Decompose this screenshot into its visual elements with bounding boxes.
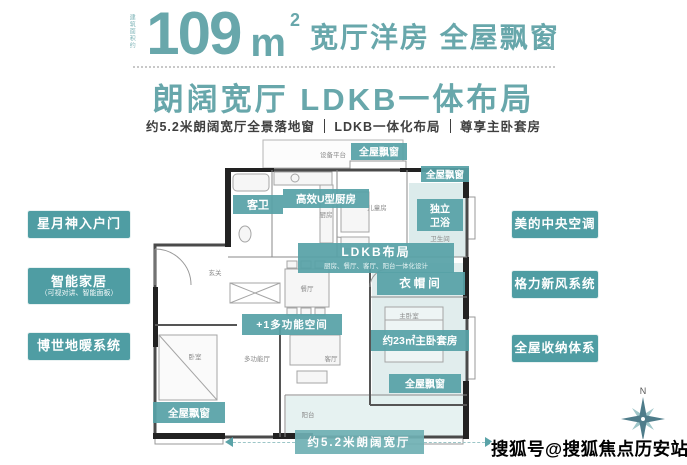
- width-dimension: 约5.2米朗阔宽厅: [225, 430, 493, 454]
- overlay-guest-bath: 客卫: [233, 195, 283, 214]
- compass-north-label: N: [618, 386, 668, 396]
- overlay-ldkb-label: LDKB布局: [341, 244, 410, 259]
- tag-floor-heating-label: 博世地暖系统: [28, 338, 130, 354]
- overlay-independent-bath-line1: 独立: [430, 203, 450, 216]
- overlay-ldkb: LDKB布局 厨房、餐厅、客厅、阳台一体化设计: [298, 243, 454, 273]
- room-entry: 玄关: [209, 268, 223, 277]
- overlay-master-suite-label: 约23㎡主卧套房: [383, 334, 458, 347]
- room-multi-hall: 多功能厅: [244, 354, 271, 363]
- dimension-line: [233, 442, 295, 443]
- tag-floor-heating: 博世地暖系统: [28, 333, 130, 360]
- tag-storage-system: 全屋收纳体系: [512, 335, 598, 362]
- floorplan-poster: 建筑面积约 109 m2 宽厅洋房 全屋飘窗 朗阔宽厅 LDKB一体布局 约5.…: [0, 0, 687, 465]
- subtitle: 朗阔宽厅 LDKB一体布局: [0, 74, 687, 119]
- tag-smart-home-sub: （可视对讲、智能面板）: [28, 290, 130, 298]
- overlay-bay-window-right: 全屋飘窗: [421, 166, 469, 182]
- dimension-arrow-left-icon: [225, 437, 233, 447]
- area-unit: m2: [250, 27, 300, 59]
- room-master: 主卧室: [399, 311, 419, 320]
- room-balcony: 阳台: [302, 410, 315, 419]
- area-exponent: 2: [290, 13, 300, 27]
- feature-separator: [450, 119, 452, 133]
- overlay-guest-bath-label: 客卫: [246, 198, 269, 212]
- overlay-independent-bath-sub: 卫生间: [430, 234, 450, 243]
- overlay-closet-label: 衣帽间: [399, 276, 443, 290]
- feature-line: 约5.2米朗阔宽厅全景落地窗 LDKB一体化布局 尊享主卧套房: [0, 116, 687, 135]
- feature-separator: [324, 119, 326, 133]
- overlay-bay-window-bottom-right: 全屋飘窗: [389, 374, 461, 393]
- tag-smart-home: 智能家居 （可视对讲、智能面板）: [28, 268, 130, 304]
- feature-item-2: LDKB一体化布局: [334, 116, 440, 135]
- title-tagline: 宽厅洋房 全屋飘窗: [310, 16, 560, 59]
- dimension-label: 约5.2米朗阔宽厅: [295, 430, 424, 454]
- overlay-ldkb-sub: 厨房、餐厅、客厅、阳台一体化设计: [324, 261, 429, 270]
- overlay-bay-window-top-label: 全屋飘窗: [358, 146, 399, 159]
- tag-central-ac: 美的中央空调: [512, 211, 598, 238]
- overlay-multi-space: +1多功能空间: [242, 314, 342, 335]
- room-bedroom: 卧室: [189, 352, 203, 361]
- floor-plan: 设备平台: [145, 137, 480, 447]
- tag-central-ac-label: 美的中央空调: [512, 217, 598, 233]
- overlay-kitchen-label: 高效U型厨房: [296, 193, 356, 206]
- equipment-platform-label: 设备平台: [320, 150, 346, 159]
- area-unit-letter: m: [250, 21, 286, 65]
- dimension-line: [424, 442, 486, 443]
- overlay-bay-window-bottom-right-label: 全屋飘窗: [404, 378, 445, 391]
- tag-entry-door-label: 星月神入户门: [28, 216, 130, 232]
- tag-smart-home-label: 智能家居: [28, 274, 130, 290]
- overlay-independent-bath-line2: 卫浴: [430, 216, 451, 229]
- area-prefix-label: 建筑面积约: [127, 14, 136, 49]
- tag-fresh-air: 格力新风系统: [512, 271, 598, 298]
- room-living: 客厅: [325, 354, 339, 363]
- feature-item-3: 尊享主卧套房: [460, 116, 541, 135]
- dotted-separator: [133, 66, 555, 68]
- overlay-multi-space-label: +1多功能空间: [256, 318, 327, 331]
- overlay-bay-window-right-label: 全屋飘窗: [425, 169, 465, 181]
- feature-item-1: 约5.2米朗阔宽厅全景落地窗: [146, 116, 315, 135]
- overlay-bay-window-bottom-left-label: 全屋飘窗: [167, 407, 210, 420]
- overlay-kitchen-sub: 厨房: [320, 210, 333, 219]
- room-dining: 餐厅: [301, 284, 315, 293]
- overlay-bay-window-top: 全屋飘窗: [351, 143, 407, 160]
- watermark: 搜狐号@搜狐焦点历安站: [491, 436, 687, 461]
- room-children: 儿童房: [367, 203, 387, 212]
- overlay-bay-window-bottom-left: 全屋飘窗: [153, 402, 225, 423]
- overlay-closet: 衣帽间: [377, 272, 465, 295]
- overlay-master-suite: 约23㎡主卧套房: [371, 330, 469, 351]
- main-title: 建筑面积约 109 m2 宽厅洋房 全屋飘窗: [0, 8, 687, 59]
- tag-entry-door: 星月神入户门: [28, 211, 130, 238]
- area-number: 109: [146, 8, 240, 59]
- tag-fresh-air-label: 格力新风系统: [512, 277, 598, 293]
- tag-storage-system-label: 全屋收纳体系: [512, 341, 598, 357]
